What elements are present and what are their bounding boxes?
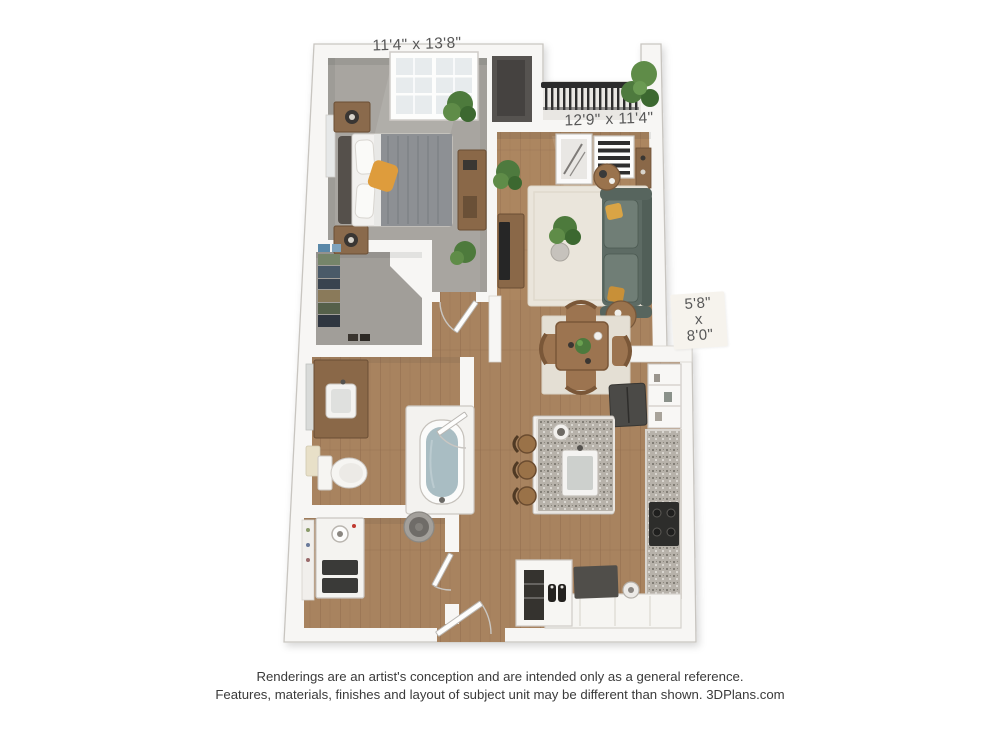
door-mat	[573, 565, 618, 599]
vanity	[314, 360, 368, 438]
dining-table	[556, 322, 608, 370]
wall-art	[556, 134, 592, 184]
side-table-top	[594, 164, 620, 190]
wall-shelf	[636, 148, 651, 188]
bed	[338, 134, 452, 226]
shoe-cabinet	[516, 560, 572, 626]
floor-plan-rendering	[0, 0, 1000, 750]
floor-plan-page: 11'4" x 13'8" 12'9" x 11'4" 5'8" x 8'0" …	[0, 0, 1000, 750]
pillow	[355, 183, 375, 218]
dining-area	[541, 302, 630, 394]
pantry-cabinet	[648, 364, 681, 428]
disclaimer-line-2: Features, materials, finishes and layout…	[0, 686, 1000, 704]
bedroom-dresser	[458, 150, 486, 230]
kitchen-island	[533, 416, 614, 514]
disclaimer-line-1: Renderings are an artist's conception an…	[0, 668, 1000, 686]
hallway-floor-landing	[432, 302, 497, 357]
laundry-basket	[404, 512, 434, 542]
hallway-floor-lower	[459, 507, 497, 628]
cup	[594, 332, 602, 340]
faucet	[577, 445, 583, 451]
bathtub	[406, 406, 474, 514]
centerpiece-plant	[575, 338, 591, 354]
hallway-floor-mid	[474, 357, 497, 507]
dining-chair	[566, 368, 596, 393]
nightstand-top	[334, 102, 370, 132]
shoes	[348, 334, 358, 341]
tv-console	[498, 214, 524, 288]
sofa	[600, 188, 652, 318]
tv	[499, 222, 510, 280]
balcony-dim-height: 8'0"	[673, 326, 728, 346]
hanging-clothes	[318, 254, 340, 327]
dining-chair	[612, 336, 630, 366]
tub-faucet	[439, 497, 445, 503]
indicator-light	[352, 524, 356, 528]
cooktop	[649, 502, 679, 546]
washer-dryer-stack	[316, 518, 364, 598]
shoes	[360, 334, 370, 341]
faucet	[341, 380, 346, 385]
disclaimer-text: Renderings are an artist's conception an…	[0, 668, 1000, 704]
toilet	[318, 456, 367, 490]
island-sink	[562, 445, 598, 496]
balcony-dimensions-label: 5'8" x 8'0"	[670, 291, 728, 350]
